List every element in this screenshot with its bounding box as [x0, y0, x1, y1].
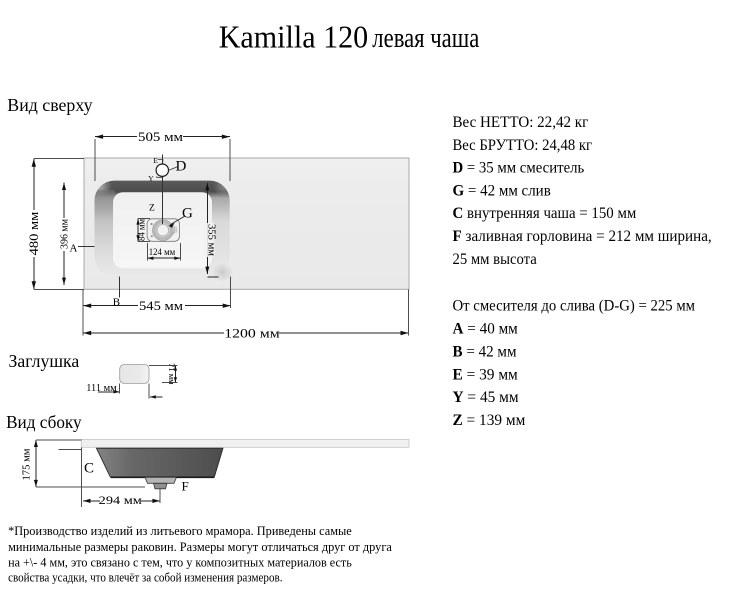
- svg-text:От смесителя до слива (D-G) =: От смесителя до слива (D-G) = 225 мм: [453, 298, 696, 315]
- svg-text:124 мм: 124 мм: [149, 248, 176, 258]
- svg-text:F: F: [182, 479, 189, 494]
- svg-text:A = 40 мм: A = 40 мм: [453, 321, 518, 338]
- svg-text:545 мм: 545 мм: [139, 298, 183, 313]
- svg-text:Y = 45 мм: Y = 45 мм: [453, 389, 519, 406]
- svg-text:505 мм: 505 мм: [138, 129, 183, 144]
- svg-text:Z: Z: [149, 204, 155, 214]
- svg-text:минимальные размеры раковин. Р: минимальные размеры раковин. Размеры мог…: [8, 540, 392, 554]
- svg-text:A: A: [70, 243, 78, 255]
- svg-text:355 мм: 355 мм: [206, 224, 217, 257]
- svg-text:294 мм: 294 мм: [99, 495, 143, 507]
- svg-text:D = 35 мм смеситель: D = 35 мм смеситель: [453, 160, 585, 177]
- svg-text:B = 42 мм: B = 42 мм: [453, 343, 517, 360]
- svg-text:*Производство изделий из литье: *Производство изделий из литьевого мрамо…: [8, 524, 352, 538]
- svg-text:G: G: [182, 206, 193, 222]
- svg-text:B: B: [113, 297, 120, 309]
- svg-text:на +\- 4 мм, это связано с тем: на +\- 4 мм, это связано с тем, что у ко…: [8, 556, 352, 570]
- svg-text:25 мм высота: 25 мм высота: [453, 251, 537, 268]
- svg-text:Y: Y: [148, 174, 154, 183]
- svg-text:480 мм: 480 мм: [26, 212, 41, 256]
- svg-text:Вес НЕТТО: 22,42 кг: Вес НЕТТО: 22,42 кг: [453, 114, 589, 131]
- svg-text:E = 39 мм: E = 39 мм: [453, 366, 518, 383]
- svg-text:111 мм: 111 мм: [86, 383, 117, 394]
- svg-text:Вид сверху: Вид сверху: [7, 95, 92, 115]
- svg-text:свойства усадки, что влечёт за: свойства усадки, что влечёт за собой изм…: [8, 571, 282, 585]
- svg-text:D: D: [176, 159, 187, 175]
- svg-text:Z = 139 мм: Z = 139 мм: [453, 412, 526, 429]
- svg-text:71 мм: 71 мм: [167, 363, 177, 385]
- svg-text:1200 мм: 1200 мм: [224, 325, 280, 340]
- svg-text:Вес БРУТТО: 24,48 кг: Вес БРУТТО: 24,48 кг: [453, 137, 593, 154]
- svg-text:Kamilla 120: Kamilla 120: [219, 18, 369, 54]
- svg-text:G = 42 мм слив: G = 42 мм слив: [453, 182, 552, 199]
- svg-text:E: E: [153, 156, 158, 165]
- svg-text:F заливная горловина = 212 мм: F заливная горловина = 212 мм ширина,: [453, 228, 712, 245]
- svg-text:C внутренняя чаша = 150 мм: C внутренняя чаша = 150 мм: [453, 205, 637, 222]
- svg-text:левая чаша: левая чаша: [372, 23, 479, 54]
- svg-text:Вид сбоку: Вид сбоку: [6, 412, 82, 432]
- svg-text:C: C: [84, 461, 94, 477]
- svg-text:84 мм: 84 мм: [137, 219, 147, 241]
- svg-text:Заглушка: Заглушка: [9, 351, 80, 371]
- svg-text:175 мм: 175 мм: [22, 448, 33, 481]
